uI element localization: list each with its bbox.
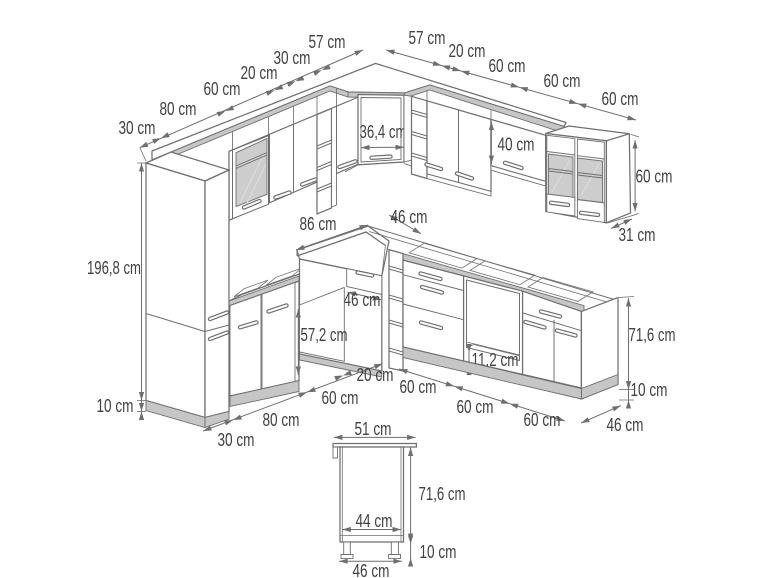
svg-text:46 cm: 46 cm: [344, 290, 381, 310]
svg-text:20 cm: 20 cm: [357, 365, 394, 385]
svg-text:60 cm: 60 cm: [636, 166, 673, 186]
svg-text:30 cm: 30 cm: [218, 430, 255, 450]
svg-text:196,8 cm: 196,8 cm: [87, 258, 141, 278]
svg-text:80 cm: 80 cm: [160, 99, 197, 119]
svg-text:60 cm: 60 cm: [400, 377, 437, 397]
svg-text:57,2 cm: 57,2 cm: [301, 325, 348, 345]
svg-text:60 cm: 60 cm: [489, 56, 526, 76]
svg-text:10 cm: 10 cm: [420, 542, 457, 562]
svg-text:20 cm: 20 cm: [241, 63, 278, 83]
svg-text:30 cm: 30 cm: [119, 118, 156, 138]
svg-text:60 cm: 60 cm: [204, 79, 241, 99]
svg-text:31 cm: 31 cm: [619, 225, 656, 245]
svg-text:80 cm: 80 cm: [263, 410, 300, 430]
svg-text:60 cm: 60 cm: [457, 397, 494, 417]
svg-text:71,6 cm: 71,6 cm: [419, 484, 466, 504]
svg-text:44 cm: 44 cm: [356, 511, 393, 531]
svg-text:46 cm: 46 cm: [353, 561, 390, 578]
svg-text:40 cm: 40 cm: [498, 134, 535, 154]
svg-text:46 cm: 46 cm: [607, 415, 644, 435]
svg-text:10 cm: 10 cm: [631, 380, 668, 400]
svg-text:46 cm: 46 cm: [391, 207, 428, 227]
svg-text:71,6 cm: 71,6 cm: [629, 325, 676, 345]
svg-text:86 cm: 86 cm: [300, 214, 337, 234]
svg-text:57 cm: 57 cm: [409, 28, 446, 48]
svg-text:30 cm: 30 cm: [274, 48, 311, 68]
svg-text:57 cm: 57 cm: [309, 32, 346, 52]
svg-text:60 cm: 60 cm: [322, 388, 359, 408]
svg-text:36,4 cm: 36,4 cm: [360, 122, 407, 142]
svg-text:60 cm: 60 cm: [544, 71, 581, 91]
svg-text:60 cm: 60 cm: [524, 410, 561, 430]
svg-text:10 cm: 10 cm: [97, 396, 134, 416]
svg-text:51 cm: 51 cm: [355, 419, 392, 439]
svg-text:20 cm: 20 cm: [449, 41, 486, 61]
svg-text:60 cm: 60 cm: [602, 89, 639, 109]
